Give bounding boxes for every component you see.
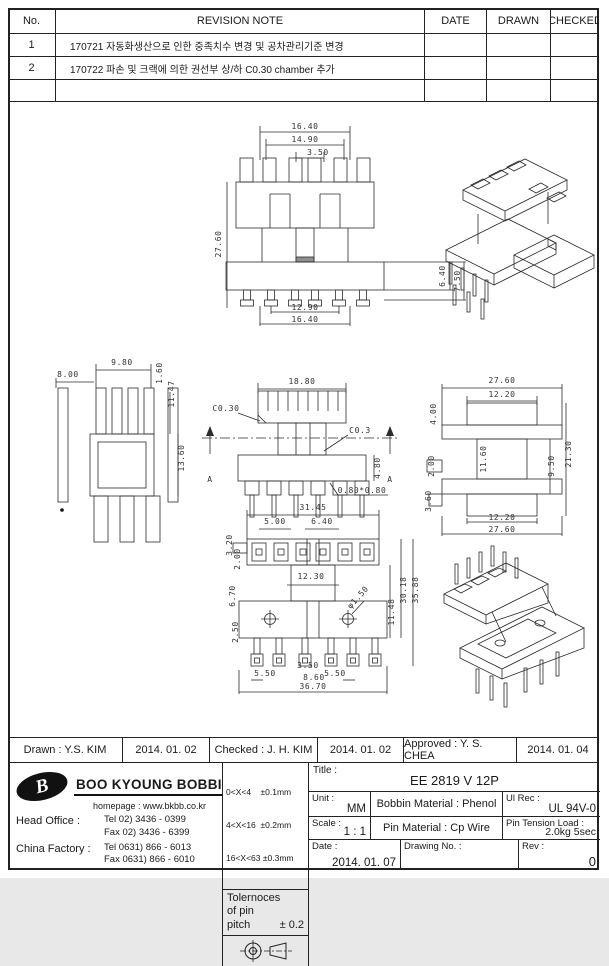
dim-label: 5.00 xyxy=(264,517,286,526)
checked-by: Checked : J. H. KIM xyxy=(210,738,318,762)
drawing-no-label: Drawing No. : xyxy=(404,841,462,852)
revision-header-note: REVISION NOTE xyxy=(56,8,425,34)
dim-label: φ1.50 xyxy=(346,584,371,610)
dim-label: 16.40 xyxy=(291,122,318,131)
dim-label: 1.60 xyxy=(155,362,164,384)
revision-cell-empty xyxy=(425,34,487,57)
dim-label: 2.00 xyxy=(233,548,242,570)
dim-label: 11.47 xyxy=(167,380,176,407)
pin-material: Pin Material : Cp Wire xyxy=(371,822,502,834)
revision-header-checked: CHECKED xyxy=(551,8,599,34)
date-cell: Date : 2014. 01. 07 xyxy=(309,840,401,870)
head-office-tel: Tel 02) 3436 - 0399 xyxy=(104,814,186,825)
head-office-label: Head Office : xyxy=(16,814,104,840)
company-homepage: homepage : www.bkbb.co.kr xyxy=(16,801,206,811)
dim-label: 5.50 xyxy=(324,669,346,678)
isometric-view-top xyxy=(446,159,594,319)
projection-symbol-cell xyxy=(223,936,308,966)
third-angle-projection-icon xyxy=(238,938,294,964)
head-office-contacts: Tel 02) 3436 - 0399 Fax 02) 3436 - 6399 xyxy=(104,814,216,840)
dim-label: 16.40 xyxy=(291,315,318,324)
revision-cell-empty xyxy=(551,34,599,57)
dim-label: 5.50 xyxy=(254,669,276,678)
dim-label: 12.20 xyxy=(488,390,515,399)
dim-label: C0.30 xyxy=(212,404,239,413)
china-factory-tel: Tel 0631) 866 - 6013 xyxy=(104,842,191,853)
checked-date: 2014. 01. 02 xyxy=(318,738,404,762)
pin-tension-value: 2.0kg 5sec xyxy=(545,826,596,838)
revision-cell-empty xyxy=(425,80,487,102)
pin-pitch-line1: Tolernoces xyxy=(227,892,304,906)
date-drawingno-row: Date : 2014. 01. 07 Drawing No. : Rev : … xyxy=(309,840,600,870)
scale-label: Scale : xyxy=(312,818,341,829)
dim-label: 3.50 xyxy=(307,148,329,157)
unit-value: MM xyxy=(347,803,366,815)
unit-label: Unit : xyxy=(312,793,334,804)
title-block: B BOO KYOUNG BOBBIN homepage : www.bkbb.… xyxy=(8,763,599,870)
bobbin-material: Bobbin Material : Phenol xyxy=(371,798,502,810)
pin-pitch-line3: pitch xyxy=(227,919,250,933)
pin-material-cell: Pin Material : Cp Wire xyxy=(371,817,503,839)
dim-label: 12.30 xyxy=(297,572,324,581)
china-factory-fax: Fax 0631) 866 - 6010 xyxy=(104,854,195,865)
revision-cell-empty xyxy=(551,80,599,102)
dim-label: 12.90 xyxy=(291,303,318,312)
revision-row-note: 170722 파손 및 크랙에 의한 권선부 상/하 C0.30 chamber… xyxy=(56,57,425,80)
company-logo-letter: B xyxy=(33,774,51,798)
dim-label: 3.60 xyxy=(424,490,433,512)
ul-rec-cell: Ul Rec : UL 94V-0 xyxy=(503,792,600,816)
pin-pitch-line2: of pin xyxy=(227,905,304,919)
revision-cell-empty xyxy=(425,57,487,80)
revision-table: No. REVISION NOTE DATE DRAWN CHECKED 1 1… xyxy=(8,8,599,102)
dim-label: 11.48 xyxy=(387,598,396,625)
revision-header-drawn: DRAWN xyxy=(487,8,551,34)
dim-label: 8.60 xyxy=(303,673,325,682)
rev-value: 0 xyxy=(589,854,596,869)
tolerance-block: 0<X<4 ±0.1mm 4<X<16 ±0.2mm 16<X<63 ±0.3m… xyxy=(222,763,308,966)
section-label: A xyxy=(207,475,212,484)
dim-label: 12.20 xyxy=(488,513,515,522)
pin-pitch-tolerance: Tolernoces of pin pitch ± 0.2 xyxy=(223,890,308,936)
ul-rec-label: Ul Rec : xyxy=(506,793,540,804)
revision-header-no: No. xyxy=(8,8,56,34)
rev-label: Rev : xyxy=(522,841,544,852)
bobbin-material-cell: Bobbin Material : Phenol xyxy=(371,792,503,816)
drawing-info-block: Title : EE 2819 V 12P Unit : MM Bobbin M… xyxy=(308,763,599,966)
tolerance-range-3: 16<X<63 ±0.3mm xyxy=(226,853,305,864)
dim-label: 3.50 xyxy=(297,661,319,670)
scale-value: 1 : 1 xyxy=(344,826,366,838)
revision-row-note: 170721 자동화생산으로 인한 중족치수 변경 및 공차관리기준 변경 xyxy=(56,34,425,57)
company-info: B BOO KYOUNG BOBBIN homepage : www.bkbb.… xyxy=(8,763,222,966)
revision-cell-empty xyxy=(487,34,551,57)
dim-label: 27.60 xyxy=(488,525,515,534)
drawing-no-cell: Drawing No. : xyxy=(401,840,519,870)
revision-row-no: 2 xyxy=(8,57,56,80)
pin-tension-cell: Pin Tension Load : 2.0kg 5sec xyxy=(503,817,600,839)
drawing-title: EE 2819 V 12P xyxy=(309,773,600,788)
dim-label: 8.00 xyxy=(57,370,79,379)
head-office-row: Head Office : Tel 02) 3436 - 0399 Fax 02… xyxy=(16,814,216,840)
dim-label: 4.00 xyxy=(429,403,438,425)
dim-label: 9.50 xyxy=(547,455,556,477)
drawn-by: Drawn : Y.S. KIM xyxy=(8,738,123,762)
dim-label: 2.00 xyxy=(427,455,436,477)
tolerance-range-2: 4<X<16 ±0.2mm xyxy=(226,820,305,831)
technical-drawing-canvas: 16.40 14.90 3.50 27.60 6.40 7.50 12.90 1… xyxy=(8,102,599,737)
dim-label: 9.80 xyxy=(111,358,133,367)
rev-cell: Rev : 0 xyxy=(519,840,600,870)
china-factory-label: China Factory : xyxy=(16,842,104,868)
pin-pitch-value: ± 0.2 xyxy=(280,919,304,933)
dim-label: 36.70 xyxy=(299,682,326,691)
company-name: BOO KYOUNG BOBBIN xyxy=(74,777,222,796)
date-value: 2014. 01. 07 xyxy=(332,857,396,869)
tolerance-ranges: 0<X<4 ±0.1mm 4<X<16 ±0.2mm 16<X<63 ±0.3m… xyxy=(223,763,308,890)
isometric-view-bottom xyxy=(444,546,584,707)
dim-label: 2.50 xyxy=(231,621,240,643)
revision-cell-empty xyxy=(487,80,551,102)
bottom-view: 31.45 5.00 6.40 3.20 2.00 12.30 φ1.50 6.… xyxy=(225,503,420,694)
china-factory-row: China Factory : Tel 0631) 866 - 6013 Fax… xyxy=(16,842,216,868)
drawing-area: 16.40 14.90 3.50 27.60 6.40 7.50 12.90 1… xyxy=(8,102,599,737)
dim-label: 6.40 xyxy=(311,517,333,526)
title-row: Title : EE 2819 V 12P xyxy=(309,763,600,792)
dim-label: 11.60 xyxy=(479,445,488,472)
section-view: 18.80 C0.30 C0.3 A A 4.80 0.80*0.80 xyxy=(202,377,400,517)
dim-label: 6.40 xyxy=(438,265,447,287)
approved-date: 2014. 01. 04 xyxy=(517,738,599,762)
unit-cell: Unit : MM xyxy=(309,792,371,816)
dim-label: 35.88 xyxy=(411,576,420,603)
date-label: Date : xyxy=(312,841,337,852)
dim-label: 21.30 xyxy=(564,440,573,467)
revision-row-no: 1 xyxy=(8,34,56,57)
revision-row-note xyxy=(56,80,425,102)
dim-label: 18.80 xyxy=(288,377,315,386)
head-office-fax: Fax 02) 3436 - 6399 xyxy=(104,827,190,838)
approved-by: Approved : Y. S. CHEA xyxy=(404,738,517,762)
tolerance-range-1: 0<X<4 ±0.1mm xyxy=(226,787,305,798)
dim-label: 4.80 xyxy=(373,457,382,479)
front-view: 16.40 14.90 3.50 27.60 6.40 7.50 12.90 1… xyxy=(214,122,466,326)
profile-view: 27.60 12.20 4.00 2.00 3.60 11.60 9.50 21… xyxy=(424,376,573,536)
dim-label: 14.90 xyxy=(291,135,318,144)
drawn-date: 2014. 01. 02 xyxy=(123,738,210,762)
dim-label: 31.45 xyxy=(299,503,326,512)
dim-label: 0.80*0.80 xyxy=(338,486,387,495)
scale-cell: Scale : 1 : 1 xyxy=(309,817,371,839)
revision-cell-empty xyxy=(551,57,599,80)
scale-pin-row: Scale : 1 : 1 Pin Material : Cp Wire Pin… xyxy=(309,817,600,840)
revision-row-no xyxy=(8,80,56,102)
ul-rec-value: UL 94V-0 xyxy=(548,803,596,815)
dim-label: 27.60 xyxy=(214,230,223,257)
dim-label: 27.60 xyxy=(488,376,515,385)
section-label: A xyxy=(387,475,392,484)
signature-row: Drawn : Y.S. KIM 2014. 01. 02 Checked : … xyxy=(8,737,599,763)
side-view: 9.80 8.00 1.60 11.47 13.60 xyxy=(56,358,186,542)
revision-header-date: DATE xyxy=(425,8,487,34)
dim-label: C0.3 xyxy=(349,426,371,435)
unit-material-row: Unit : MM Bobbin Material : Phenol Ul Re… xyxy=(309,792,600,817)
dim-label: 13.60 xyxy=(177,444,186,471)
china-factory-contacts: Tel 0631) 866 - 6013 Fax 0631) 866 - 601… xyxy=(104,842,216,868)
dim-label: 6.70 xyxy=(228,585,237,607)
dim-label: 30.18 xyxy=(399,576,408,603)
revision-cell-empty xyxy=(487,57,551,80)
